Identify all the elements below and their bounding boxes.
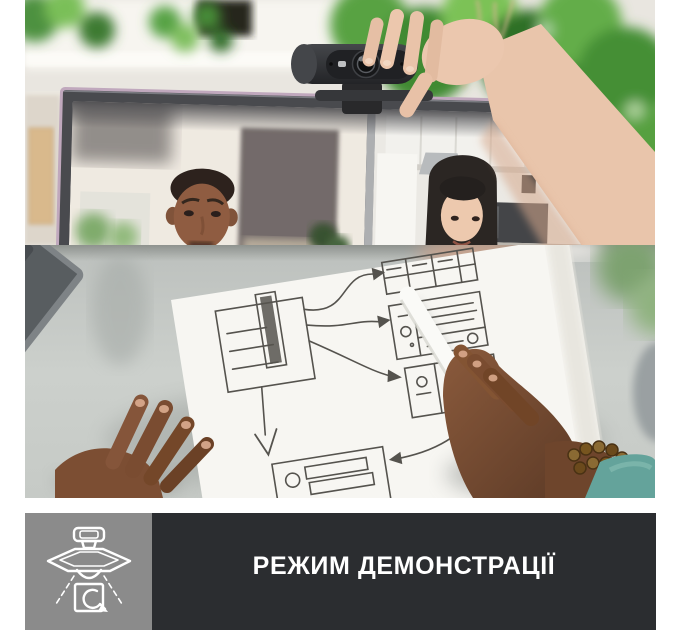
- product-photo: [25, 0, 655, 498]
- demo-mode-banner: РЕЖИМ ДЕМОНСТРАЦІЇ: [25, 513, 656, 630]
- product-page: РЕЖИМ ДЕМОНСТРАЦІЇ: [0, 0, 680, 630]
- show-mode-icon: [43, 524, 135, 620]
- demo-mode-label: РЕЖИМ ДЕМОНСТРАЦІЇ: [253, 552, 556, 581]
- demo-mode-label-bar: РЕЖИМ ДЕМОНСТРАЦІЇ: [152, 513, 656, 630]
- video-call-photo: [25, 0, 655, 271]
- show-mode-icon-box: [25, 513, 152, 630]
- picture-frame: [29, 128, 53, 224]
- logo-mark: [338, 61, 346, 67]
